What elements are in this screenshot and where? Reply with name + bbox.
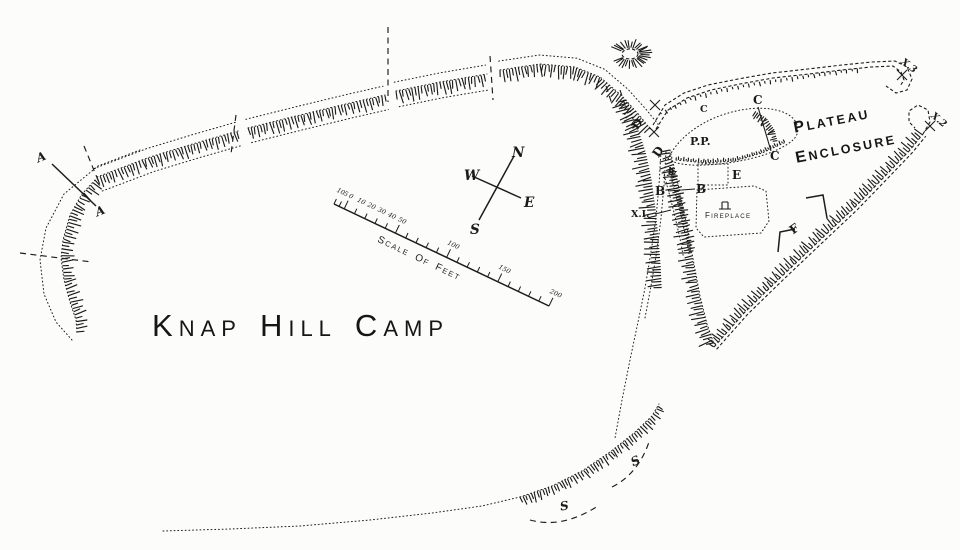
hachure-band-north-rampart-1 [94,122,242,191]
scale-tick-label: 20 [365,200,377,211]
map-title: KNAPHILLCAMP [152,308,449,343]
earthwork-hachures [61,40,926,504]
scale-bar-line [334,204,549,306]
scarp-s-label-2: S [628,453,642,469]
survey-marks [20,27,935,523]
compass-ns-line [479,156,514,220]
scale-tick-label: 50 [397,215,408,226]
f-bracket-east [806,195,827,218]
compass-we-line [472,176,521,198]
section-a-label-2: A [92,203,107,220]
cutting-e-label: E [732,168,741,182]
section-f-label: F [787,220,802,237]
section-c-label-2: C [753,93,763,107]
map-page: 10501020304050100150200 [0,0,960,550]
enclosure-title: PLATEAU ENCLOSURE [788,101,898,167]
hachure-band-pp-mound-end [753,112,777,142]
hachure-band-north-rampart-3 [394,65,490,107]
compass-east-label: E [523,195,535,211]
scale-bar-ticks [334,199,553,306]
site-plan-map: 10501020304050100150200 [0,0,960,550]
ditch-dotted-lines [40,150,666,531]
west-outer-ditch [40,150,140,340]
scarp-curve-2 [612,442,649,487]
hachure-band-north-rampart-2 [246,86,388,142]
hachure-band-enclosure-se-bank [708,129,925,349]
hachure-band-south-scarp [520,404,663,504]
x1-tick [655,210,671,214]
scale-tick-label: 100 [446,239,461,252]
hachure-band-enclosure-west-bank [658,150,714,346]
scale-tick-label: 10 [356,196,367,207]
fireplace-label: FIREPLACE [705,211,751,220]
section-b-label-1: B [655,184,665,198]
scale-tick-label: 150 [497,263,512,276]
x1-label: X.I. [631,209,649,220]
hachure-band-inner-mound-b [663,169,694,256]
hachure-band-west-rampart [61,180,101,333]
cross-x3 [897,70,907,80]
section-d-label-2: D [649,144,666,161]
south-boundary [163,497,520,531]
enclosure-title-line1: PLATEAU [792,105,871,136]
scale-tick-label: 200 [548,287,564,300]
section-b-label-2: B [696,182,706,196]
pp-label: P.P. [690,135,711,148]
section-c-label-3: C [770,149,780,163]
barrow-ring [612,40,652,69]
barrow-inner-ring [622,49,638,59]
section-c-label-1: C [700,104,708,115]
scale-tick-label: 40 [386,210,398,221]
section-line-c-c [758,107,771,151]
scarp-s-label-1: S [559,498,570,513]
compass-south-label: S [470,222,480,238]
compass-north-label: N [511,145,525,161]
small-h-mark: h [668,167,675,177]
gap-dash-3 [490,56,493,100]
east-ditch-b [645,152,666,318]
scale-tick-label: 30 [376,206,387,217]
cross-d-lower [649,127,659,137]
hearth-icon [719,202,731,209]
compass-west-label: W [464,168,481,184]
section-line-a-a [52,164,96,206]
gap-dash-west [84,146,100,185]
enclosure-north-boundary-outer [653,61,912,125]
map-labels: KNAPHILLCAMP PLATEAU ENCLOSURE SCALEOFFE… [33,56,949,514]
cross-d-upper [650,100,660,110]
enclosure-title-line2: ENCLOSURE [794,131,898,167]
section-a-label-1: A [33,149,48,166]
gap-dash-southwest [20,253,92,262]
